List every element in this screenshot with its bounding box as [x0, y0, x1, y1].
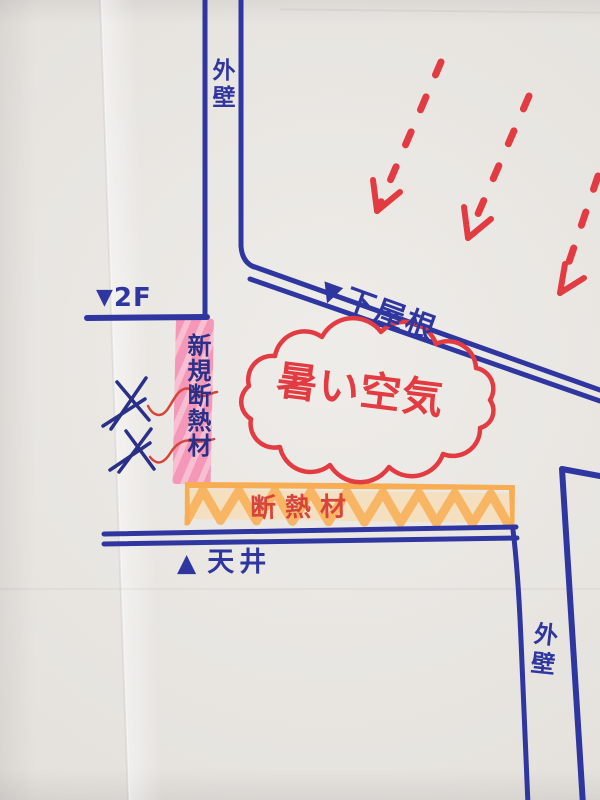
floor-2f-text: 2F	[114, 283, 152, 313]
x-mark-1	[103, 378, 149, 429]
hot-air-arrow-2	[464, 96, 529, 238]
ceiling-lines	[104, 527, 517, 544]
floor-2f-line	[87, 317, 207, 318]
triangle-up-icon: ▲	[177, 548, 201, 577]
wall-top-label: 外壁	[204, 58, 238, 112]
exterior-wall-top-lines	[205, 0, 254, 315]
new-insulation-label: 新規断熱材	[180, 333, 215, 458]
ceiling-text: 天井	[207, 547, 271, 578]
insulation-label: 断熱材	[250, 486, 356, 525]
wall-bottom-label: 外壁	[522, 620, 563, 681]
hot-air-arrow-3	[560, 176, 598, 293]
x-mark-2	[110, 429, 154, 472]
sketch-paper: 外壁 ▼2F ▼下屋根 暑い空気 新規断熱材 断熱材 ▲天井 外壁	[0, 0, 600, 800]
triangle-down-icon: ▼	[96, 285, 114, 310]
ceiling-label: ▲天井	[177, 540, 271, 579]
floor-2f-label: ▼2F	[96, 283, 152, 313]
hot-air-arrow-1	[373, 62, 441, 211]
